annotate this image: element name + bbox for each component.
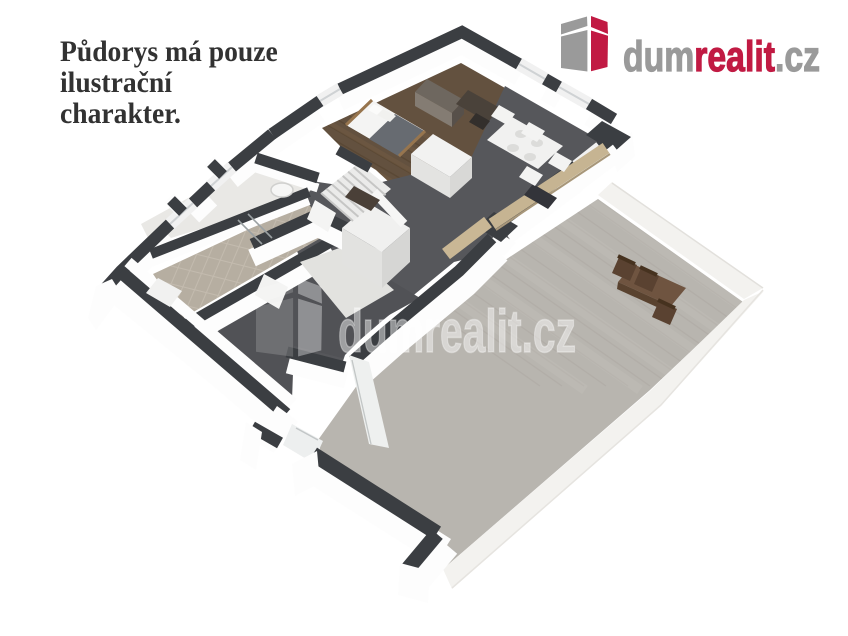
svg-text:dumrealit.cz: dumrealit.cz	[338, 298, 576, 365]
svg-text:dumrealit.cz: dumrealit.cz	[623, 33, 820, 81]
